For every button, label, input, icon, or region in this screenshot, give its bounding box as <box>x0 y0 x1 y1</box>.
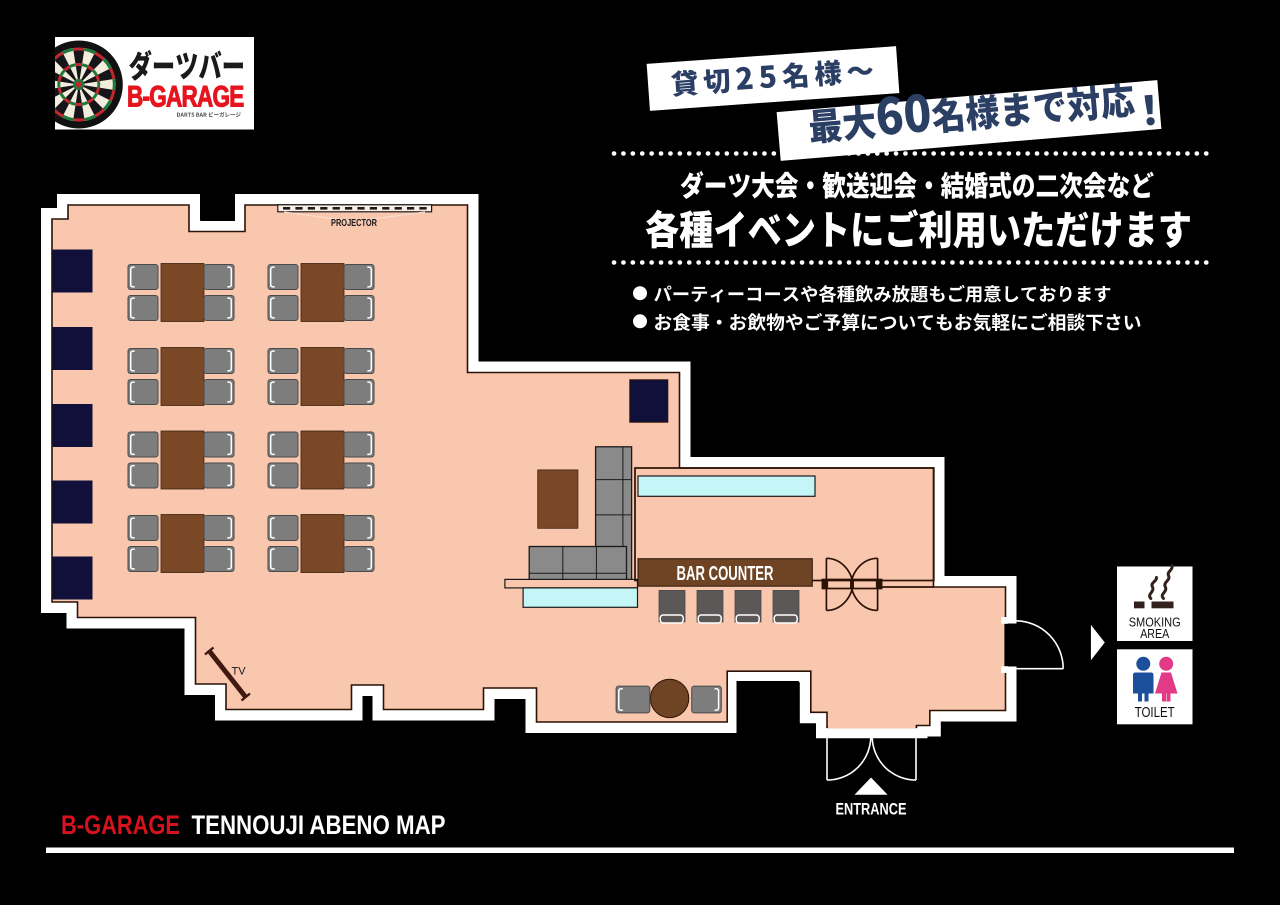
svg-text:TENNOUJI ABENO MAP: TENNOUJI ABENO MAP <box>192 810 446 840</box>
svg-text:ENTRANCE: ENTRANCE <box>836 801 907 819</box>
svg-text:BAR COUNTER: BAR COUNTER <box>677 563 774 585</box>
svg-text:PROJECTOR: PROJECTOR <box>331 218 377 229</box>
svg-text:TV: TV <box>232 666 247 678</box>
svg-text:B-GARAGE: B-GARAGE <box>61 810 180 840</box>
svg-text:TOILET: TOILET <box>1135 705 1175 721</box>
svg-text:B-GARAGE: B-GARAGE <box>127 81 244 114</box>
svg-text:AREA: AREA <box>1140 626 1169 641</box>
